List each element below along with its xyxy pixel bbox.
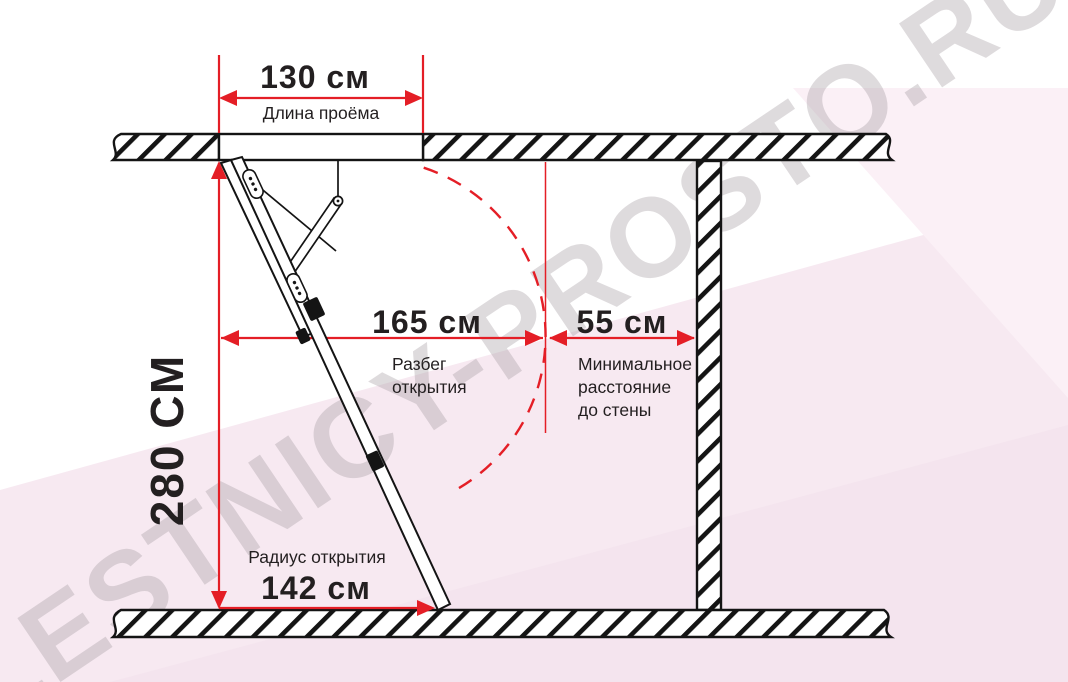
ceiling-beam: [113, 134, 892, 160]
dim-wall-distance-value: 55 см: [542, 304, 702, 341]
dim-room-height-value: 280 СМ: [140, 290, 200, 590]
dim-opening-run-value: 165 см: [327, 304, 527, 341]
dim-opening-radius-value: 142 см: [216, 570, 416, 607]
ceiling-beam-right: [423, 134, 892, 160]
dim-opening-length-label: Длина проёма: [221, 102, 421, 125]
ladder-dimensions-diagram: LESTNICY-PROSTO.RU: [0, 0, 1068, 682]
ceiling-beam-left: [113, 134, 219, 160]
dim-wall-distance-label: Минимальное расстояние до стены: [578, 353, 758, 422]
dim-opening-radius-label: Радиус открытия: [217, 546, 417, 569]
dim-opening-run-label: Разбег открытия: [392, 353, 552, 399]
dim-opening-length-value: 130 см: [215, 59, 415, 96]
floor-beam: [113, 610, 891, 637]
ceiling-opening: [219, 134, 423, 160]
